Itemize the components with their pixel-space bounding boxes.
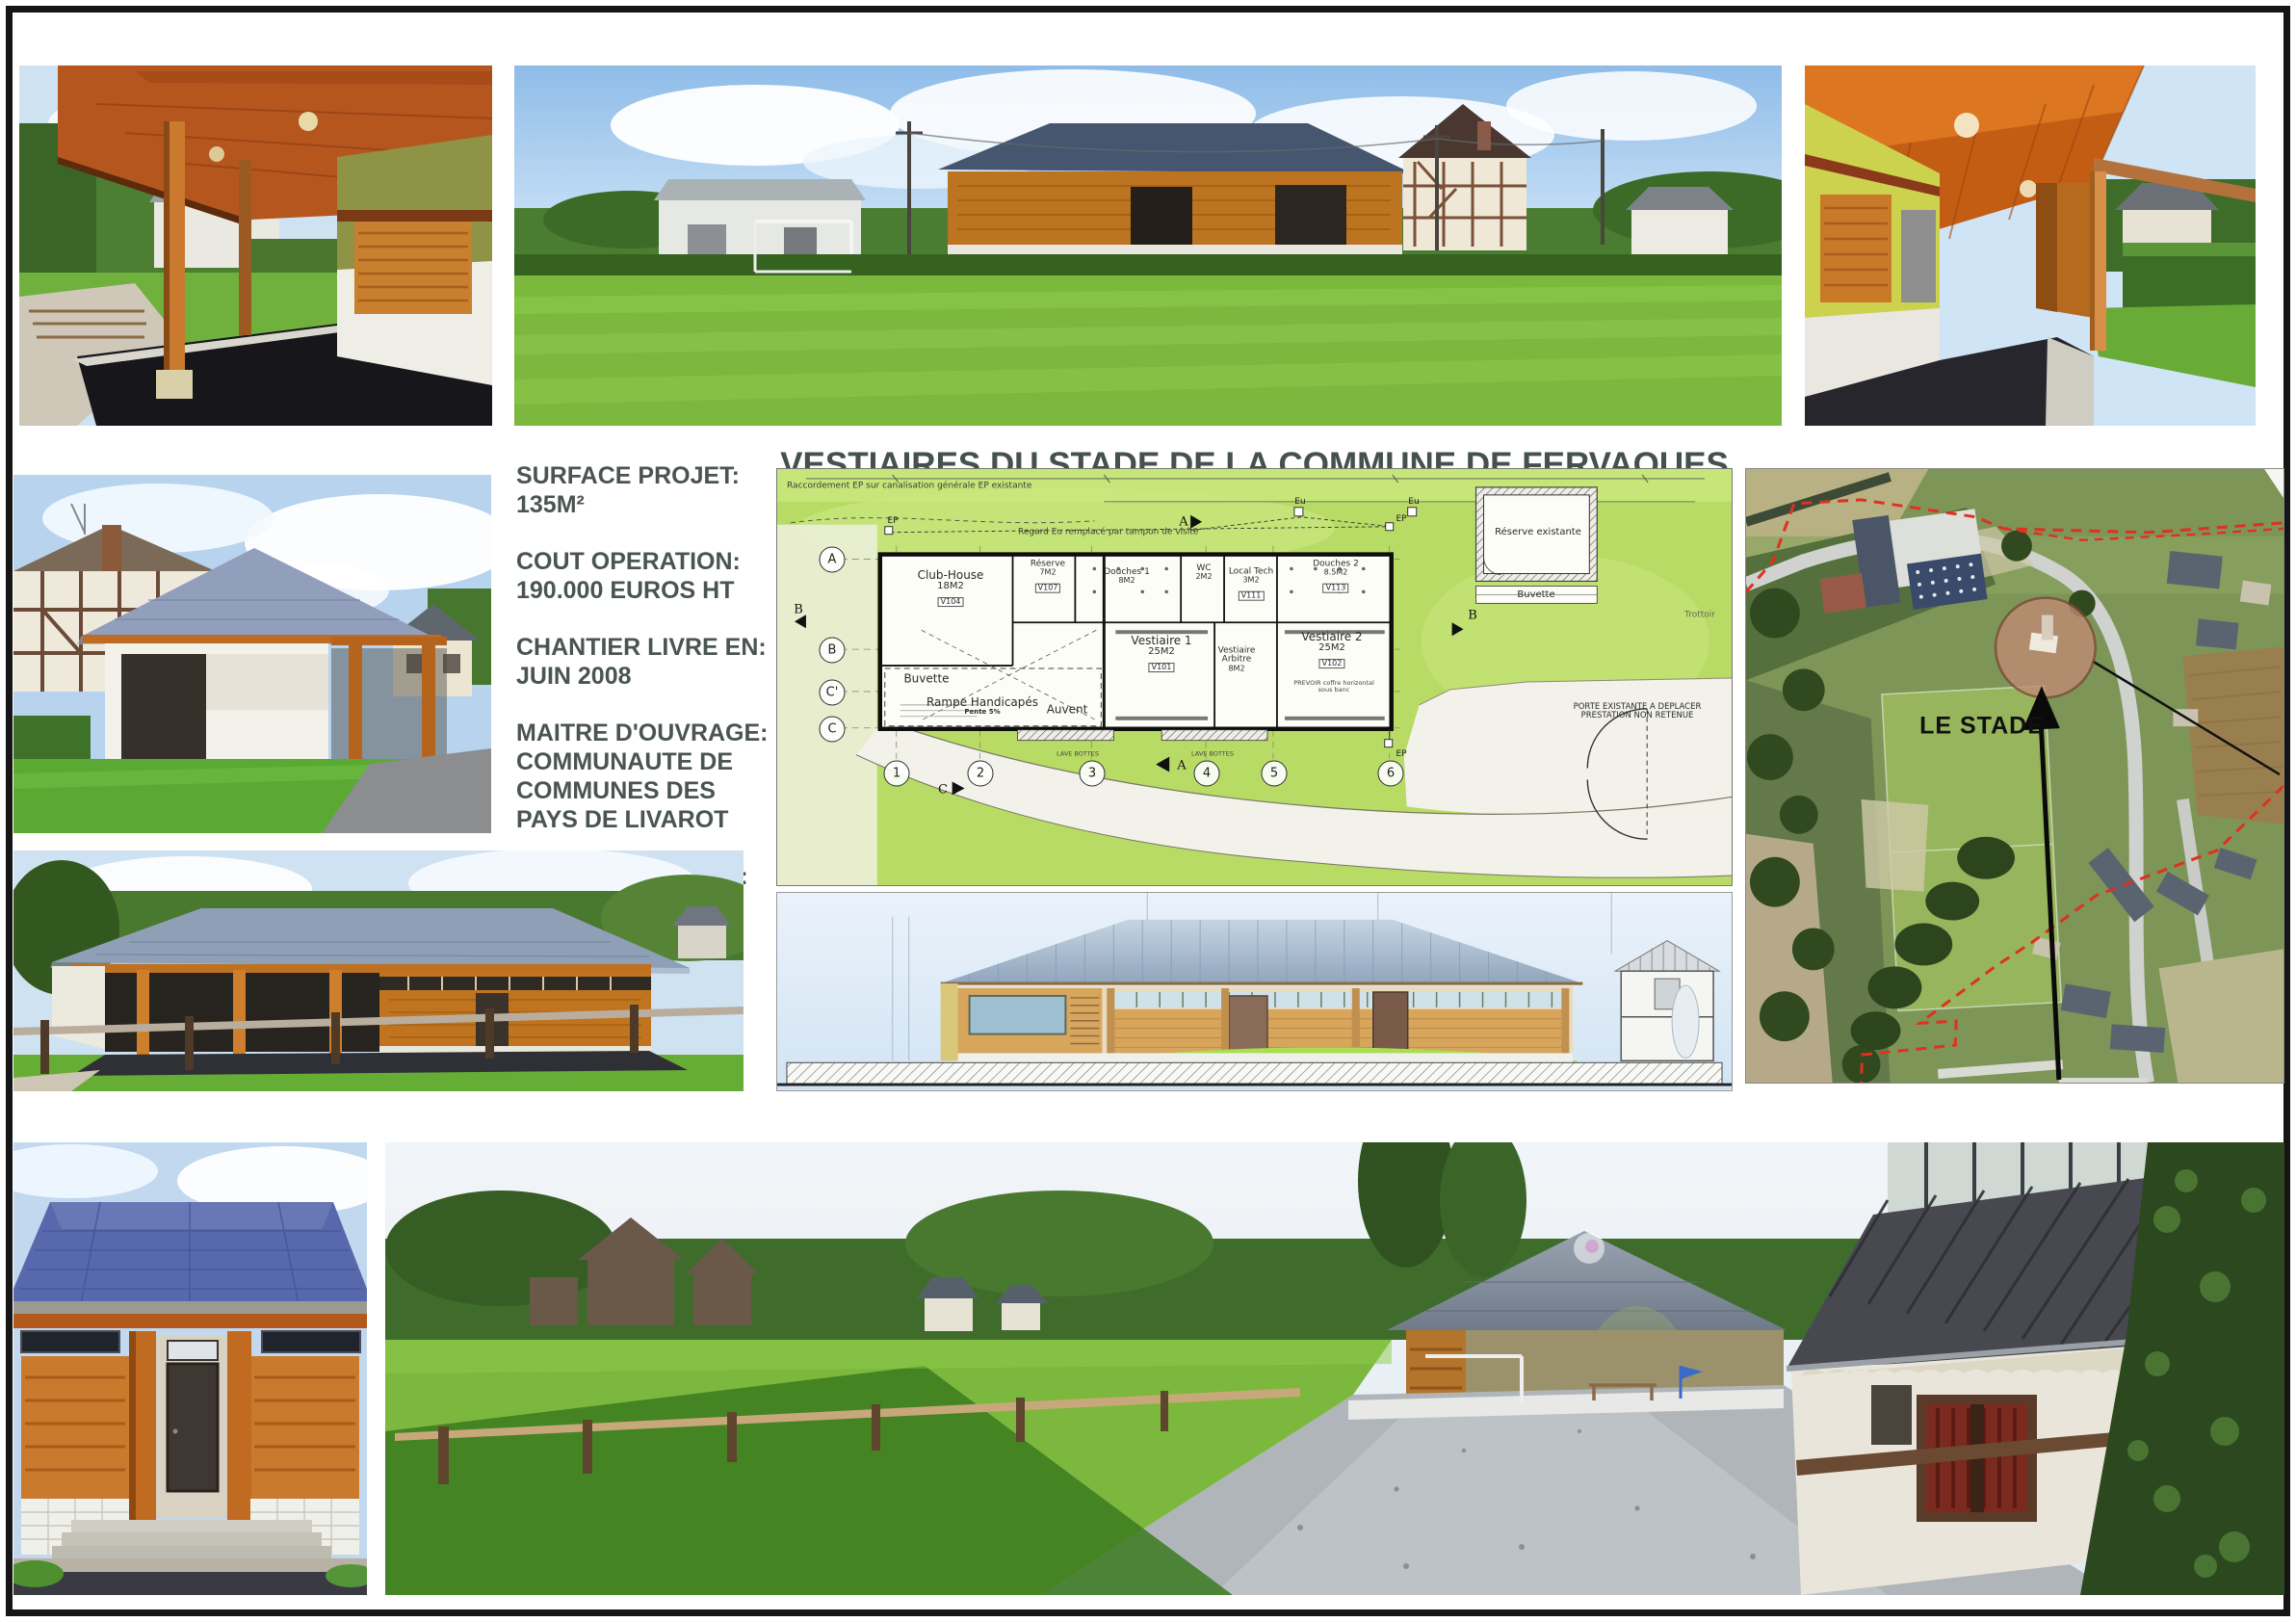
plan-section-b-left: B xyxy=(794,603,803,617)
plan-room-reserve-existante: Réserve existante xyxy=(1495,528,1581,538)
plan-room-vestiaire-arbitre: Vestiaire Arbitre 8M2 xyxy=(1212,646,1262,672)
plan-grid-col-4: 4 xyxy=(1194,761,1220,787)
plan-section-a-top: A xyxy=(1179,515,1187,530)
plan-room-local-tech: Local Tech 3M2 V111 xyxy=(1229,568,1273,602)
plan-room-vestiaire-2: Vestiaire 2 25M2 V102 xyxy=(1301,631,1362,669)
elevation-panel xyxy=(776,892,1733,1091)
plan-room-douches-1: Douches 1 8M2 xyxy=(1104,568,1150,586)
plan-marker-ep-3: EP xyxy=(1396,749,1406,759)
plan-note-raccordement: Raccordement EP sur canalisation général… xyxy=(787,482,1031,490)
plan-note-prevoir: PREVOIR coffre horizontal sous banc xyxy=(1292,680,1375,693)
info-owner: MAITRE D'OUVRAGE: COMMUNAUTE DE COMMUNES… xyxy=(516,719,778,834)
photo-site-rendering xyxy=(385,1142,2284,1595)
plan-room-vestiaire-1: Vestiaire 1 25M2 V101 xyxy=(1131,635,1191,673)
photo-porch-corridor xyxy=(1805,65,2256,426)
photo-site-panorama-image xyxy=(514,65,1782,426)
plan-grid-col-3: 3 xyxy=(1080,761,1106,787)
plan-room-douches-2: Douches 2 8.5M2 V113 xyxy=(1313,561,1359,594)
map-label-le-stade: LE STADE xyxy=(1919,713,2045,741)
plan-note-regard: Regard Eu remplacé par tampon de visite xyxy=(1018,528,1198,536)
plan-room-club-house: Club-House 18M2 V104 xyxy=(918,569,984,608)
plan-note-lave-bottes-1: LAVE BOTTES xyxy=(1057,751,1099,758)
plan-marker-ep-2: EP xyxy=(1396,514,1406,524)
plan-marker-ep-1: EP xyxy=(887,516,898,526)
photo-building-rear xyxy=(13,475,491,833)
info-cost: COUT OPERATION: 190.000 EUROS HT xyxy=(516,547,778,605)
photo-entrance-doors-image xyxy=(13,1142,367,1595)
photo-building-front-wide xyxy=(13,850,744,1091)
info-surface-label: SURFACE PROJET: xyxy=(516,461,778,490)
plan-section-a-bottom: A xyxy=(1177,759,1186,773)
plan-note-porte: PORTE EXISTANTE A DEPLACER PRESTATION NO… xyxy=(1574,703,1702,720)
plan-room-buvette-existante: Buvette xyxy=(1517,590,1554,601)
info-cost-value: 190.000 EUROS HT xyxy=(516,576,778,605)
plan-grid-row-a: A xyxy=(820,547,846,573)
plan-room-reserve: Réserve 7M2 V107 xyxy=(1031,561,1065,594)
photo-porch-corridor-image xyxy=(1805,65,2256,426)
plan-note-trottoir: Trottoir xyxy=(1684,611,1715,619)
plan-room-rampe: Rampe Handicapés Pente 5% xyxy=(926,696,1038,716)
photo-porch-corner-image xyxy=(19,65,492,426)
plan-grid-col-2: 2 xyxy=(968,761,994,787)
plan-grid-col-5: 5 xyxy=(1262,761,1288,787)
elevation-drawing xyxy=(777,893,1732,1090)
photo-porch-corner xyxy=(19,65,492,426)
site-plan-panel: Raccordement EP sur canalisation général… xyxy=(776,468,1733,886)
photo-site-rendering-image xyxy=(385,1142,2284,1595)
plan-section-c-bottom: C xyxy=(938,783,948,798)
plan-room-auvent: Auvent xyxy=(1047,704,1088,717)
info-delivery: CHANTIER LIVRE EN: JUIN 2008 xyxy=(516,633,778,691)
info-owner-value: COMMUNAUTE DE COMMUNES DES PAYS DE LIVAR… xyxy=(516,747,778,834)
info-delivery-value: JUIN 2008 xyxy=(516,662,778,691)
plan-marker-eu-2: Eu xyxy=(1408,497,1419,507)
plan-grid-col-6: 6 xyxy=(1378,761,1404,787)
info-surface-value: 135M² xyxy=(516,490,778,519)
plan-section-b-right: B xyxy=(1468,609,1477,623)
plan-grid-row-c: C xyxy=(820,717,846,743)
photo-building-front-wide-image xyxy=(13,850,744,1091)
plan-room-wc: WC 2M2 xyxy=(1195,564,1212,582)
plan-marker-eu-1: Eu xyxy=(1294,497,1305,507)
info-cost-label: COUT OPERATION: xyxy=(516,547,778,576)
plan-grid-col-1: 1 xyxy=(884,761,910,787)
photo-building-rear-image xyxy=(13,475,491,833)
info-delivery-label: CHANTIER LIVRE EN: xyxy=(516,633,778,662)
info-surface: SURFACE PROJET: 135M² xyxy=(516,461,778,519)
photo-site-panorama xyxy=(514,65,1782,426)
aerial-map-panel: LE STADE xyxy=(1745,468,2284,1084)
plan-note-lave-bottes-2: LAVE BOTTES xyxy=(1191,751,1234,758)
presentation-board: VESTIAIRES DU STADE DE LA COMMUNE DE FER… xyxy=(0,0,2296,1622)
site-plan-labels: Raccordement EP sur canalisation général… xyxy=(777,469,1732,885)
plan-grid-row-c-prime: C' xyxy=(820,680,846,706)
aerial-map-image xyxy=(1746,469,2283,1083)
photo-entrance-doors xyxy=(13,1142,367,1595)
plan-room-buvette: Buvette xyxy=(903,673,949,686)
plan-grid-row-b: B xyxy=(820,638,846,664)
info-owner-label: MAITRE D'OUVRAGE: xyxy=(516,719,778,747)
